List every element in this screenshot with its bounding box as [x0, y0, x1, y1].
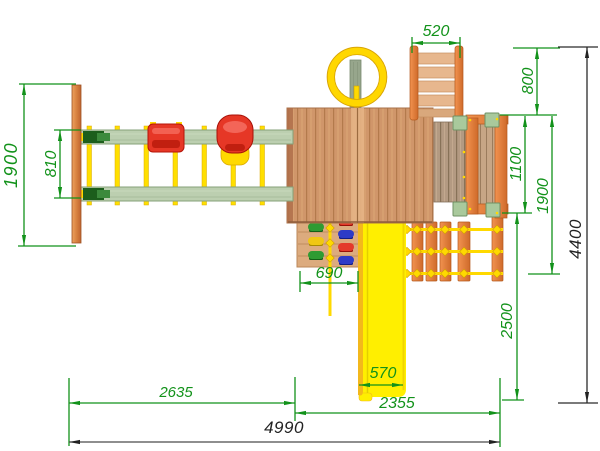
tower-roof: [287, 108, 433, 223]
climb-hold-green: [308, 223, 324, 232]
climb-hold-blue: [338, 256, 354, 265]
post-cap: [486, 203, 500, 217]
balcony-post: [466, 118, 478, 214]
swing-beam-bottom: [80, 187, 293, 201]
climb-hold-blue: [338, 230, 354, 239]
aframe-leg: [72, 85, 81, 243]
ladder-rail: [455, 46, 463, 120]
roof-left-edge: [287, 108, 293, 223]
climb-hold-yellow: [308, 237, 324, 246]
dim-label-swing-section-width: 2635: [158, 384, 193, 401]
climb-hold-green: [308, 251, 324, 260]
ladder-rung: [418, 109, 455, 117]
slide-edge: [358, 223, 363, 396]
drawing-canvas: 1900 810 520 800 1100 1900 2500 690 570 …: [0, 0, 600, 451]
post-cap: [453, 202, 467, 216]
dim-label-beam-spacing: 810: [43, 151, 60, 178]
dim-label-climb-wall-width: 690: [316, 265, 343, 282]
dim-label-tower-section-width: 2355: [378, 395, 415, 412]
dim-label-overall-width: 4990: [264, 418, 304, 437]
climb-hold-red: [338, 243, 354, 252]
ladder-rung: [418, 95, 455, 106]
ladder-rung: [418, 67, 455, 78]
swing-beam-top: [80, 130, 293, 144]
ladder-rung: [418, 81, 455, 92]
swing-seat-flat: [148, 122, 184, 152]
dim-label-frame-span-left: 1900: [1, 142, 21, 188]
deck: [434, 122, 467, 202]
dim-label-slide-run-depth: 2500: [499, 303, 516, 340]
dim-label-ladder-offset: 800: [520, 68, 537, 95]
dim-label-ladder-width: 520: [423, 23, 450, 40]
ladder-rail: [410, 46, 418, 120]
ladder-rung: [418, 53, 455, 64]
dim-label-right-section-depth: 1900: [535, 178, 552, 214]
balcony-floor: [478, 124, 496, 204]
dim-label-overall-depth: 4400: [566, 219, 585, 259]
post-cap: [453, 116, 467, 130]
dim-label-balcony-depth: 1100: [508, 147, 525, 182]
swing-seat-bucket: [217, 115, 253, 165]
playground-top-view-drawing: 1900 810 520 800 1100 1900 2500 690 570 …: [0, 0, 600, 451]
dim-label-slide-width: 570: [370, 365, 397, 382]
access-ladder: [410, 46, 463, 120]
